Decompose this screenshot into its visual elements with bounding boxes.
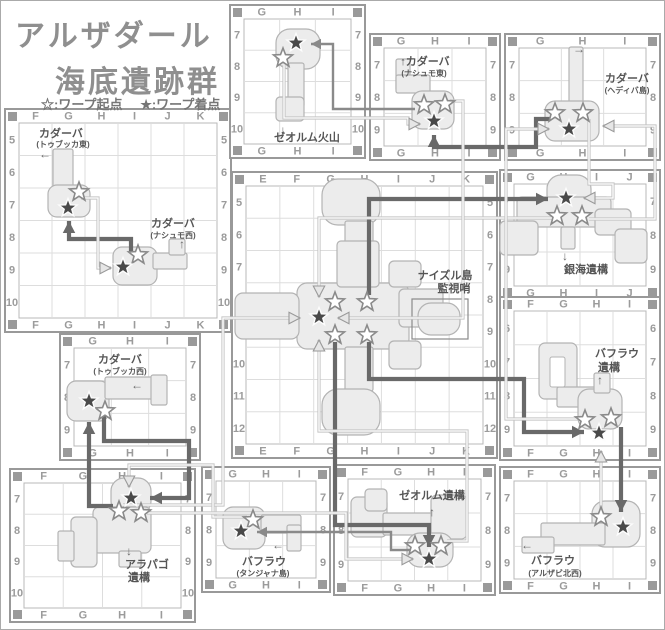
corner-square <box>373 148 382 157</box>
map-text: F <box>40 471 47 483</box>
map-text: 10 <box>352 123 364 135</box>
map-area-shape <box>365 489 387 511</box>
map-text: 9 <box>234 92 240 104</box>
map-text: I <box>595 172 598 184</box>
corner-square <box>353 8 362 17</box>
map-text: F <box>32 111 39 123</box>
map-text: 6 <box>650 323 656 335</box>
map-text: H <box>427 467 435 479</box>
map-text: E <box>259 446 266 458</box>
map-area-shape <box>615 229 647 263</box>
corner-square <box>485 446 494 455</box>
map-text: I <box>467 148 470 160</box>
map-text: I <box>298 580 301 592</box>
map-text: H <box>262 580 270 592</box>
map-text: 8 <box>9 232 15 244</box>
map-area-shape <box>58 531 74 561</box>
map-text: → <box>573 42 585 56</box>
map-text: 監視哨 <box>438 281 471 295</box>
map-text: 11 <box>484 391 496 403</box>
map-text: 7 <box>374 59 380 71</box>
map-text: 12 <box>233 423 245 435</box>
map-text: H <box>98 320 106 332</box>
map-text: バフラウ <box>531 554 575 567</box>
map-text: 8 <box>490 92 496 104</box>
map-text: H <box>361 446 369 458</box>
map-text: I <box>397 446 400 458</box>
map-text: 8 <box>487 294 493 306</box>
map-text: I <box>623 148 626 160</box>
map-text: 9 <box>650 558 656 570</box>
map-text: I <box>160 471 163 483</box>
map-text: H <box>118 610 126 622</box>
map-text: G <box>79 610 88 622</box>
map-area-shape <box>322 389 380 435</box>
map-text: G <box>64 320 73 332</box>
map-text: I <box>298 469 301 481</box>
map-text: F <box>527 581 534 593</box>
map-text: 6 <box>236 229 242 241</box>
map-text: 9 <box>14 556 20 568</box>
map-text: 10 <box>218 297 230 309</box>
map-text: アラパゴ <box>125 557 169 571</box>
map-text: 9 <box>320 557 326 569</box>
map-text: ← <box>272 538 284 552</box>
map-text: G <box>88 336 97 348</box>
map-text: 10 <box>231 123 243 135</box>
map-text: I <box>160 610 163 622</box>
corner-square <box>183 610 192 619</box>
map-text: H <box>427 583 435 595</box>
map-text: 10 <box>182 587 194 599</box>
map-text: 6 <box>221 167 227 179</box>
map-text: F <box>293 174 300 186</box>
map-text: 8 <box>355 61 361 73</box>
legend-warp-origin: ☆:ワープ起点 <box>41 97 123 112</box>
map-text: H <box>262 469 270 481</box>
map-text: 9 <box>490 125 496 137</box>
map-text: I <box>467 36 470 48</box>
map-text: G <box>526 172 535 184</box>
map-text: 5 <box>9 134 15 146</box>
map-text: G <box>394 583 403 595</box>
map-text: G <box>228 580 237 592</box>
corner-square <box>648 448 657 457</box>
map-text: I <box>463 583 466 595</box>
warp-legend: ☆:ワープ起点 ★:ワープ着点 <box>41 94 234 113</box>
corner-square <box>508 148 517 157</box>
map-text: ← <box>39 147 51 161</box>
map-text: カダーバ <box>605 71 649 85</box>
map-text: ↓ <box>126 544 132 558</box>
corner-square <box>63 448 72 457</box>
map-text: 8 <box>320 525 326 537</box>
corner-square <box>235 175 244 184</box>
map-text: 8 <box>234 61 240 73</box>
map-text: I <box>628 581 631 593</box>
map-text: G <box>394 467 403 479</box>
map-text: I <box>166 448 169 460</box>
map-text: 9 <box>185 556 191 568</box>
map-text: G <box>258 7 267 19</box>
map-area-shape <box>389 261 421 287</box>
map-text: 9 <box>206 557 212 569</box>
corner-square <box>485 175 494 184</box>
map-text: 9 <box>509 125 515 137</box>
map-text: 7 <box>221 199 227 211</box>
map-text: G <box>397 36 406 48</box>
map-text: 10 <box>6 297 18 309</box>
map-text: 7 <box>650 492 656 504</box>
map-area-hole <box>550 357 565 387</box>
map-text: 8 <box>185 525 191 537</box>
map-title-line1: アルザダール <box>15 11 220 55</box>
map-text: G <box>559 581 568 593</box>
corner-square <box>488 37 497 46</box>
map-text: 8 <box>650 525 656 537</box>
map-text: 9 <box>221 264 227 276</box>
map-text: ← <box>131 378 143 392</box>
map-text: 遺構 <box>127 570 150 584</box>
corner-square <box>235 446 244 455</box>
map-text: ↓ <box>562 249 568 263</box>
map-text: H <box>593 299 601 311</box>
map-text: (トゥブッカ東) <box>36 139 90 149</box>
map-text: (ヘディバ島) <box>605 85 650 95</box>
map-text: 8 <box>650 230 656 242</box>
map-text: 8 <box>206 525 212 537</box>
map-text: F <box>527 299 534 311</box>
map-text: G <box>559 299 568 311</box>
map-text: F <box>361 583 368 595</box>
map-text: J <box>626 172 632 184</box>
map-text: 7 <box>234 30 240 42</box>
map-text: H <box>431 148 439 160</box>
corner-square <box>219 112 228 121</box>
map-text: 9 <box>485 559 491 571</box>
map-text: 7 <box>206 492 212 504</box>
map-text: I <box>628 448 631 460</box>
map-text: (ナシュモ東) <box>401 68 447 78</box>
map-text: 7 <box>320 492 326 504</box>
panel-silver-sea-remnants: GGHHIIJJ778899 <box>500 170 660 300</box>
map-text: 8 <box>485 525 491 537</box>
map-text: 6 <box>487 229 493 241</box>
map-text: H <box>579 148 587 160</box>
corner-square <box>233 8 242 17</box>
map-text: H <box>126 448 134 460</box>
map-text: H <box>593 581 601 593</box>
corner-square <box>318 580 327 589</box>
map-text: ゼオルム遺構 <box>399 488 465 502</box>
map-text: 9 <box>9 264 15 276</box>
map-text: H <box>294 7 302 19</box>
map-text: 9 <box>504 558 510 570</box>
map-text: G <box>397 148 406 160</box>
corner-square <box>233 146 242 155</box>
map-text: I <box>397 174 400 186</box>
panel-alzadaal-central: EEFFGGHHIIJJKK5566778899101011111212 <box>232 172 497 458</box>
map-text: G <box>559 469 568 481</box>
map-text: I <box>623 36 626 48</box>
map-text: カダーバ <box>98 352 142 366</box>
map-text: G <box>536 36 545 48</box>
map-text: 9 <box>650 264 656 276</box>
map-text: 7 <box>650 59 656 71</box>
map-text: H <box>294 146 302 158</box>
corner-square <box>337 583 346 592</box>
map-text: ← <box>521 538 533 552</box>
corner-square <box>188 337 197 346</box>
map-text: 遺構 <box>597 360 620 374</box>
map-text: 8 <box>650 390 656 402</box>
map-text: G <box>258 146 267 158</box>
map-area-shape <box>151 375 167 405</box>
map-text: 7 <box>504 492 510 504</box>
map-area-shape <box>287 525 301 551</box>
map-text: F <box>527 469 534 481</box>
panel-zhayolm-remnants: FFGGHHII778899 <box>334 465 495 595</box>
map-text: I <box>332 7 335 19</box>
map-text: (ナシュモ西) <box>150 231 196 240</box>
map-text: カダーバ <box>151 216 195 230</box>
map-text: H <box>431 36 439 48</box>
corner-square <box>648 300 657 309</box>
map-text: バフラウ <box>595 347 639 360</box>
corner-square <box>648 37 657 46</box>
map-text: G <box>79 471 88 483</box>
map-text: 7 <box>490 59 496 71</box>
map-text: 12 <box>484 423 496 435</box>
legend-warp-destination: ★:ワープ着点 <box>140 97 220 112</box>
map-text: ↑ <box>597 373 603 387</box>
map-text: F <box>32 320 39 332</box>
map-text: 8 <box>374 92 380 104</box>
corner-square <box>8 320 17 329</box>
map-text: 銀海遺構 <box>564 262 608 276</box>
corner-square <box>503 448 512 457</box>
map-area-shape <box>389 341 421 369</box>
map-text: I <box>628 299 631 311</box>
map-text: 11 <box>233 391 245 403</box>
map-text: 7 <box>487 262 493 274</box>
map-text: J <box>429 174 435 186</box>
map-text: G <box>228 469 237 481</box>
map-area-shape <box>71 517 97 567</box>
map-text: 9 <box>355 92 361 104</box>
map-text: 7 <box>355 30 361 42</box>
corner-square <box>13 472 22 481</box>
map-text: H <box>126 336 134 348</box>
map-text: 7 <box>64 359 70 371</box>
map-text: 8 <box>509 92 515 104</box>
panel-arrapago-remnants: FFGGHHII7788991010 <box>10 469 195 622</box>
corner-square <box>353 146 362 155</box>
map-text: 9 <box>338 559 344 571</box>
map-text: G <box>559 448 568 460</box>
map-text: 6 <box>9 167 15 179</box>
map-text: (タンジャナ島) <box>237 568 290 578</box>
map-text: 7 <box>509 59 515 71</box>
corner-square <box>63 337 72 346</box>
map-text: 7 <box>9 199 15 211</box>
map-text: 10 <box>484 358 496 370</box>
map-text: ナイズル島 <box>418 268 473 282</box>
map-area-shape <box>337 241 379 287</box>
map-text: J <box>429 446 435 458</box>
corner-square <box>648 581 657 590</box>
map-text: 7 <box>14 494 20 506</box>
corner-square <box>13 610 22 619</box>
corner-square <box>503 581 512 590</box>
corner-square <box>373 37 382 46</box>
map-text: バフラウ <box>242 555 286 568</box>
map-area-shape <box>569 47 583 107</box>
map-text: E <box>259 174 266 186</box>
corner-square <box>483 583 492 592</box>
corner-square <box>508 37 517 46</box>
map-text: ゼオルム火山 <box>274 130 340 144</box>
map-text: F <box>40 610 47 622</box>
map-title: アルザダール 海底遺跡群 <box>15 11 220 101</box>
map-text: J <box>164 320 170 332</box>
map-area-shape <box>561 227 575 249</box>
map-text: (アルザビ北西) <box>528 568 582 578</box>
map-text: F <box>527 448 534 460</box>
corner-square <box>205 580 214 589</box>
map-text: 9 <box>487 326 493 338</box>
map-text: 8 <box>504 525 510 537</box>
map-text: 9 <box>504 424 510 436</box>
map-text: 7 <box>338 491 344 503</box>
map-text: 9 <box>190 425 196 437</box>
map-text: 5 <box>236 197 242 209</box>
corner-square <box>337 468 346 477</box>
map-text: 9 <box>374 125 380 137</box>
map-text: 5 <box>221 134 227 146</box>
corner-square <box>318 470 327 479</box>
map-image: アルザダール 海底遺跡群 ☆:ワープ起点 ★:ワープ着点 FFGGHHIIJJK… <box>0 0 665 630</box>
map-text: 7 <box>190 359 196 371</box>
corner-square <box>488 148 497 157</box>
map-text: 8 <box>190 392 196 404</box>
map-text: I <box>166 336 169 348</box>
map-text: 8 <box>650 92 656 104</box>
corner-square <box>503 470 512 479</box>
map-text: 8 <box>221 232 227 244</box>
corner-square <box>648 470 657 479</box>
map-text: 7 <box>236 262 242 274</box>
map-text: F <box>293 446 300 458</box>
map-text: (トゥブッカ西) <box>93 366 147 376</box>
map-text: カダーバ <box>39 126 83 140</box>
map-text: K <box>197 320 205 332</box>
map-text: 10 <box>233 358 245 370</box>
map-text: H <box>593 469 601 481</box>
corner-square <box>483 468 492 477</box>
map-text: F <box>361 467 368 479</box>
map-text: I <box>628 469 631 481</box>
corner-square <box>648 288 657 297</box>
map-text: 9 <box>64 425 70 437</box>
map-text: G <box>536 148 545 160</box>
map-text: I <box>332 146 335 158</box>
map-text: 8 <box>14 525 20 537</box>
map-text: 9 <box>650 424 656 436</box>
map-text: I <box>133 320 136 332</box>
map-text: ↑カダーバ <box>400 54 449 68</box>
map-text: 7 <box>650 357 656 369</box>
map-text: ↑ <box>429 505 435 519</box>
map-text: 7 <box>485 491 491 503</box>
map-text: 10 <box>11 587 23 599</box>
corner-square <box>8 112 17 121</box>
